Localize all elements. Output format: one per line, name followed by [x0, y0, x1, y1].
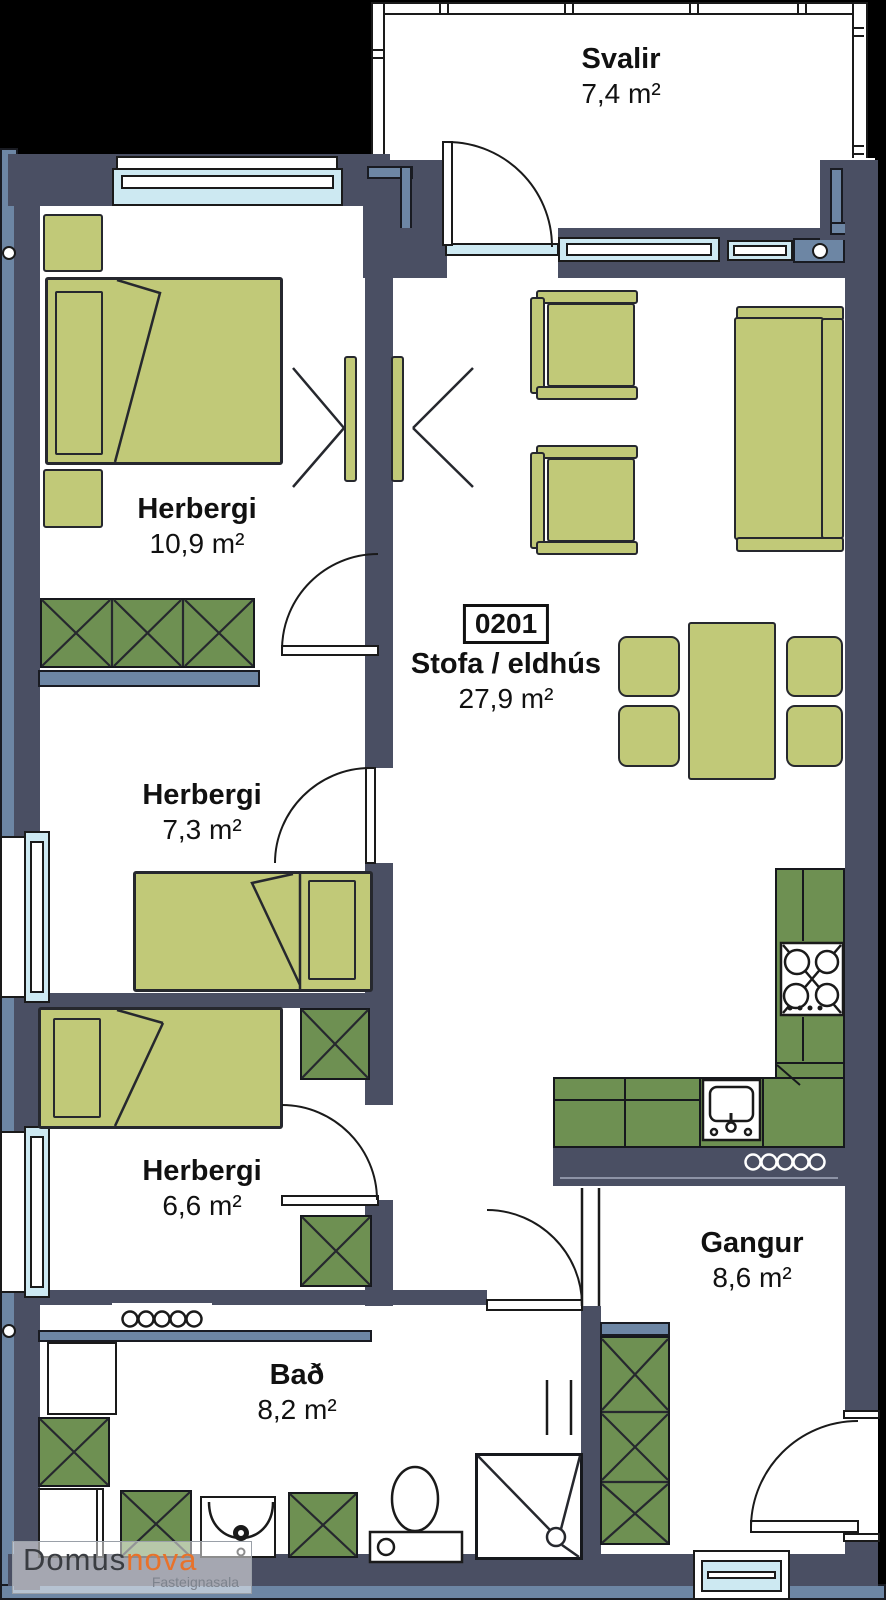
- hall-window-sash: [707, 1571, 776, 1579]
- room-name: Bað: [257, 1358, 336, 1393]
- wardrobe-bedroom3-bottom: [300, 1215, 372, 1287]
- wall-bath-hall: [581, 1306, 601, 1560]
- wall-bathroom-north: [14, 1290, 487, 1305]
- agency-logo-name: Domus: [23, 1542, 126, 1577]
- wall-bedroom2-bedroom3: [38, 993, 378, 1008]
- living-window-1-sash: [566, 243, 712, 256]
- agency-logo-tagline: Fasteignasala: [152, 1574, 239, 1590]
- balcony-railing-top: [371, 2, 868, 15]
- balcony-door-threshold: [445, 243, 559, 256]
- room-name: Herbergi: [142, 1154, 261, 1189]
- wall-kitchen-hall: [553, 1148, 845, 1186]
- wall-spine-upper: [365, 206, 393, 768]
- armchair-1-seat: [547, 303, 635, 387]
- agency-logo-accent: nova: [126, 1542, 197, 1577]
- room-area: 7,3 m²: [142, 813, 261, 847]
- wall-liner-5: [830, 168, 843, 230]
- double-bed-headboard: [55, 291, 103, 455]
- tv-bedroom1: [344, 356, 357, 482]
- entry-frame-bottom: [843, 1533, 880, 1542]
- room-name: Svalir: [581, 42, 660, 77]
- room-area: 7,4 m²: [581, 77, 660, 111]
- room-area: 10,9 m²: [137, 527, 256, 561]
- armchair-1-back: [530, 297, 545, 394]
- label-herbergi-1: Herbergi 10,9 m²: [137, 492, 256, 561]
- entry-door-opening: [845, 1416, 878, 1536]
- room-name: Gangur: [700, 1226, 803, 1261]
- room-name: Herbergi: [142, 778, 261, 813]
- armchair-2-arm-bottom: [536, 541, 638, 555]
- wall-bedroom1-bedroom2: [38, 670, 260, 687]
- armchair-2-seat: [547, 458, 635, 542]
- living-window-2-sash: [733, 245, 787, 256]
- wardrobe-bedroom1: [40, 598, 255, 668]
- hall-wardrobe-shelf: [600, 1322, 670, 1336]
- nightstand-1: [43, 214, 103, 272]
- label-bad: Bað 8,2 m²: [257, 1358, 336, 1427]
- bedroom2-window-sash: [30, 841, 44, 993]
- kitchen-counter-horizontal: [553, 1077, 845, 1148]
- unit-number-badge: 0201: [463, 604, 549, 644]
- armchair-1-arm-top: [536, 290, 638, 304]
- label-herbergi-2: Herbergi 7,3 m²: [142, 778, 261, 847]
- bathroom-cabinet-left: [38, 1417, 110, 1487]
- single-bed-1-pillow: [308, 880, 356, 980]
- wall-liner-4: [793, 238, 845, 263]
- wardrobe-hall: [600, 1336, 670, 1545]
- bathroom-cabinet-tall: [47, 1342, 117, 1415]
- bedroom1-window-sash: [121, 175, 334, 189]
- bedroom3-window-frame: [0, 1131, 26, 1293]
- armchair-2-back: [530, 452, 545, 549]
- room-area: 27,9 m²: [411, 682, 601, 716]
- wardrobe-bedroom3-top: [300, 1008, 370, 1080]
- floor-plan: Svalir 7,4 m² Herbergi 10,9 m² 0201 Stof…: [0, 0, 886, 1600]
- room-area: 6,6 m²: [142, 1189, 261, 1223]
- room-name: Herbergi: [137, 492, 256, 527]
- room-area: 8,2 m²: [257, 1393, 336, 1427]
- wall-right: [845, 160, 878, 1586]
- label-herbergi-3: Herbergi 6,6 m²: [142, 1154, 261, 1223]
- label-stofa: 0201 Stofa / eldhús 27,9 m²: [411, 604, 601, 716]
- dining-chair-4: [786, 705, 843, 767]
- sofa-arm-bottom: [736, 537, 844, 552]
- label-gangur: Gangur 8,6 m²: [700, 1226, 803, 1295]
- armchair-1-arm-bottom: [536, 386, 638, 400]
- wall-liner-bathroom: [38, 1330, 372, 1342]
- bedroom2-window-frame: [0, 836, 26, 998]
- entry-frame-top: [843, 1410, 880, 1419]
- bathroom-radiator-niche: [112, 1303, 212, 1333]
- room-area: 8,6 m²: [700, 1261, 803, 1295]
- label-svalir: Svalir 7,4 m²: [581, 42, 660, 111]
- kitchen-counter-vertical: [775, 868, 845, 1080]
- armchair-2-arm-top: [536, 445, 638, 459]
- dining-chair-2: [618, 705, 680, 767]
- room-name: Stofa / eldhús: [411, 647, 601, 682]
- agency-logo: Domusnova Fasteignasala: [12, 1541, 252, 1594]
- balcony-railing-left: [371, 2, 385, 164]
- shower: [475, 1453, 583, 1560]
- sofa-back: [821, 318, 844, 539]
- dining-chair-3: [786, 636, 843, 697]
- balcony-railing-right: [852, 2, 868, 164]
- bedroom3-window-sash: [30, 1136, 44, 1288]
- tv-living: [391, 356, 404, 482]
- agency-logo-wordmark: Domusnova: [23, 1542, 197, 1578]
- single-bed-2-pillow: [53, 1018, 101, 1118]
- dining-table: [688, 622, 776, 780]
- nightstand-2: [43, 469, 103, 528]
- vanity-cabinet-right: [288, 1492, 358, 1558]
- sofa-seat: [734, 317, 824, 540]
- dining-chair-1: [618, 636, 680, 697]
